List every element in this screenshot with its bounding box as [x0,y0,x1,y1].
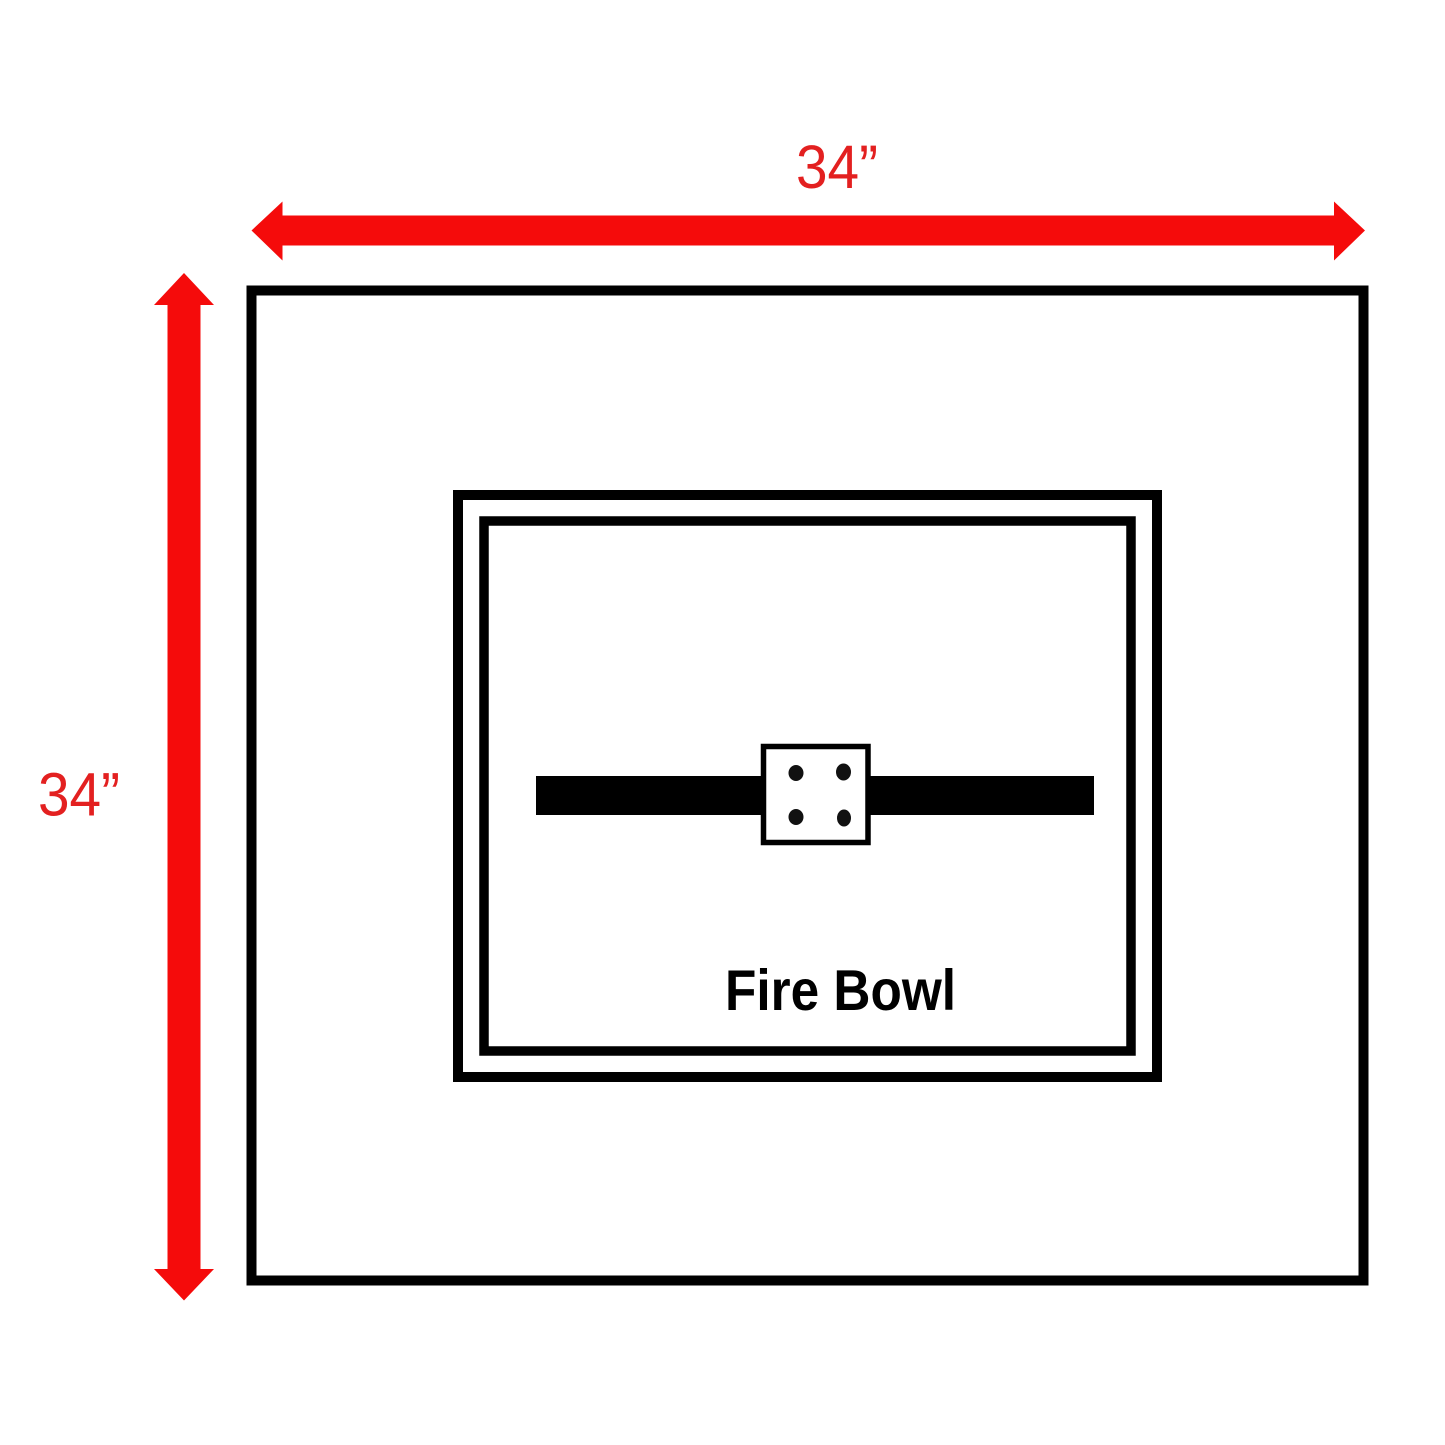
svg-text:34”: 34” [38,761,120,829]
svg-text:34”: 34” [796,133,878,201]
svg-text:Fire Bowl: Fire Bowl [725,959,956,1023]
